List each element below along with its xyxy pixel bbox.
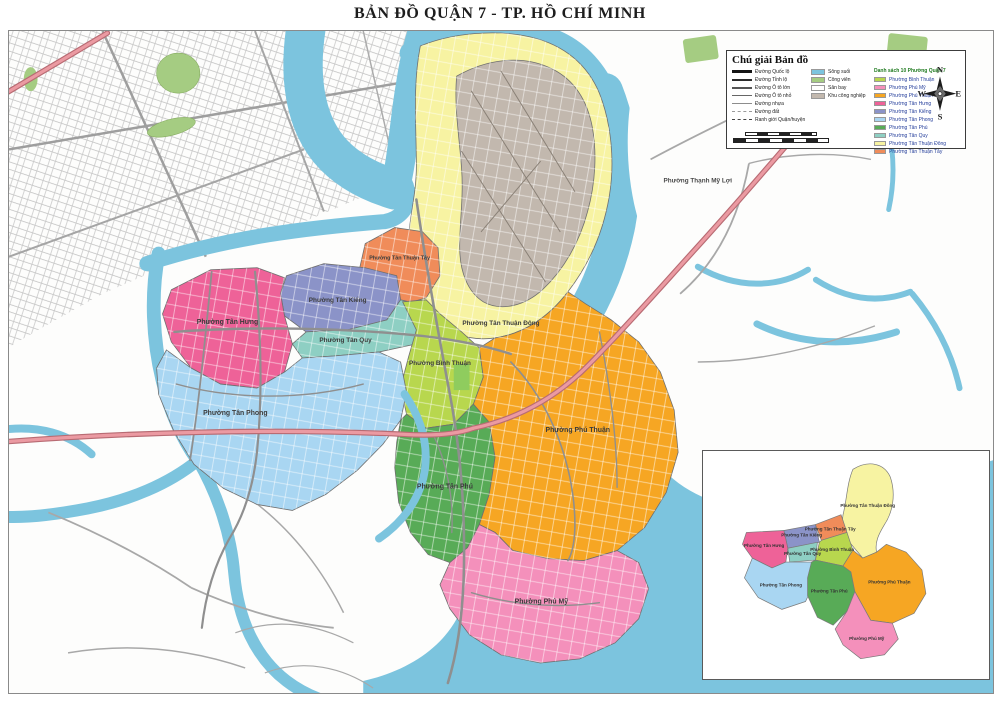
inset-wards [742, 464, 925, 659]
area-swatch [811, 85, 825, 91]
inset-map-box: Phường Tân Thuận Đông Phường Tân Thuận T… [702, 450, 990, 680]
legend-road-label: Đường Tỉnh lộ [755, 77, 787, 83]
legend-area-label: Sông suối [828, 69, 850, 75]
ward-swatch [874, 109, 886, 114]
legend-area-item: Công viên [811, 76, 869, 83]
map-label: Phường Tân Hưng [197, 319, 258, 326]
inset-label: Phường Tân Thuận Đông [840, 503, 895, 508]
ward-swatch [874, 93, 886, 98]
compass-center [938, 92, 942, 96]
map-label: Phường Phú Thuận [546, 427, 610, 434]
area-swatch [811, 93, 825, 99]
road-line-sample [732, 95, 752, 96]
map-label: Phường Phú Mỹ [515, 599, 569, 606]
legend-road-label: Ranh giới Quận/huyện [755, 117, 805, 123]
legend-area-item: Sân bay [811, 84, 869, 91]
inset-label: Phường Tân Phú [811, 589, 848, 594]
compass-north: N [937, 65, 944, 75]
road-line-sample [732, 111, 752, 112]
compass-east: E [955, 89, 961, 99]
area-swatch [811, 69, 825, 75]
map-label: Phường Bình Thuận [409, 360, 471, 367]
road-line-sample [732, 70, 752, 73]
ward-swatch [874, 85, 886, 90]
road-line-sample [732, 79, 752, 81]
ward-swatch [874, 133, 886, 138]
legend-ward-item: Phường Tân Quy [874, 132, 950, 139]
scale-bar-lower [733, 138, 829, 143]
area-swatch [811, 77, 825, 83]
road-line-sample [732, 119, 752, 120]
legend-road-item: Đường Tỉnh lộ [732, 76, 806, 83]
compass-south: S [938, 112, 943, 122]
inset-label: Phường Tân Hưng [744, 543, 785, 548]
map-label: Phường Tân Phong [203, 410, 267, 417]
legend-road-item: Ranh giới Quận/huyện [732, 116, 806, 123]
legend-area-item: Sông suối [811, 68, 869, 75]
ward-name: Phường Tân Quy [889, 133, 928, 139]
inset-label: Phường Phú Thuận [868, 580, 911, 585]
legend-box: Chú giải Bản đồ Đường Quốc lộ Đường Tỉnh… [726, 50, 966, 149]
ward-name: Phường Tân Phú [889, 125, 928, 131]
ward-swatch [874, 101, 886, 106]
ward-swatch [874, 149, 886, 154]
legend-road-item: Đường nhựa [732, 100, 806, 107]
ward-swatch [874, 117, 886, 122]
legend-area-label: Sân bay [828, 85, 846, 91]
map-label: Phường Tân Phú [417, 483, 473, 490]
inset-map: Phường Tân Thuận Đông Phường Tân Thuận T… [703, 451, 989, 679]
legend-ward-item: Phường Tân Phú [874, 124, 950, 131]
park [454, 364, 470, 390]
page-title: BẢN ĐỒ QUẬN 7 - TP. HỒ CHÍ MINH [0, 5, 1000, 23]
inset-label: Phường Tân Kiểng [781, 531, 822, 537]
legend-ward-item: Phường Tân Thuận Tây [874, 148, 950, 155]
inset-label: Phường Bình Thuận [810, 547, 854, 552]
map-label: Phường Tân Kiểng [309, 296, 367, 304]
legend-road-item: Đường Ô tô lớn [732, 84, 806, 91]
map-label: Phường Tân Quy [319, 337, 372, 344]
compass-graphic: N W E S [917, 63, 963, 122]
inset-label: Phường Phú Mỹ [849, 636, 885, 641]
legend-road-label: Đường Quốc lộ [755, 69, 789, 75]
legend-ward-item: Phường Tân Thuận Đông [874, 140, 950, 147]
ward-swatch [874, 77, 886, 82]
inset-label: Phường Tân Phong [760, 583, 803, 588]
map-label: Phường Tân Thuận Đông [462, 320, 539, 327]
road-line-sample [732, 87, 752, 89]
road-line-sample [732, 103, 752, 104]
ward-swatch [874, 125, 886, 130]
map-page: BẢN ĐỒ QUẬN 7 - TP. HỒ CHÍ MINH [0, 0, 1000, 706]
legend-road-label: Đường đất [755, 109, 779, 115]
map-label: Phường Thạnh Mỹ Lợi [664, 177, 733, 184]
legend-road-label: Đường Ô tô nhỏ [755, 93, 791, 99]
legend-road-item: Đường đất [732, 108, 806, 115]
ward-name: Phường Tân Thuận Đông [889, 141, 946, 147]
scale-bar-upper [745, 132, 817, 136]
legend-road-item: Đường Ô tô nhỏ [732, 92, 806, 99]
legend-road-label: Đường Ô tô lớn [755, 85, 790, 91]
scale-bar [733, 132, 829, 143]
legend-area-label: Khu công nghiệp [828, 93, 866, 99]
ward-swatch [874, 141, 886, 146]
compass-rose: N W E S [917, 63, 963, 125]
legend-road-item: Đường Quốc lộ [732, 68, 806, 75]
legend-area-label: Công viên [828, 77, 851, 83]
park [157, 53, 200, 93]
inset-label: Phường Tân Thuận Tây [805, 526, 856, 531]
ward-name: Phường Tân Thuận Tây [889, 149, 942, 155]
map-label: Phường Tân Thuận Tây [369, 256, 430, 262]
park [683, 35, 719, 64]
legend-area-item: Khu công nghiệp [811, 92, 869, 99]
legend-road-label: Đường nhựa [755, 101, 784, 107]
